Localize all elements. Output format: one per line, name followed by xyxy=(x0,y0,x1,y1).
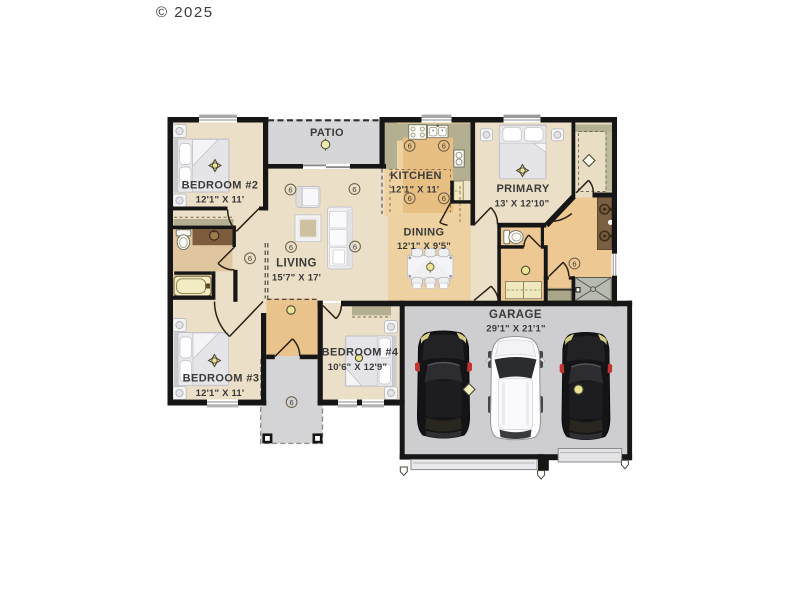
svg-text:10'6" X 12'9": 10'6" X 12'9" xyxy=(328,362,387,373)
svg-text:15'7" X 17': 15'7" X 17' xyxy=(272,273,321,284)
svg-text:BEDROOM #4: BEDROOM #4 xyxy=(322,347,399,359)
svg-text:BEDROOM #3: BEDROOM #3 xyxy=(183,373,260,385)
svg-text:KITCHEN: KITCHEN xyxy=(390,170,442,182)
svg-text:12'1" X 9'5": 12'1" X 9'5" xyxy=(397,241,451,252)
svg-text:12'1" X 11': 12'1" X 11' xyxy=(391,185,440,196)
svg-text:12'1" X 11': 12'1" X 11' xyxy=(196,388,245,399)
svg-text:PATIO: PATIO xyxy=(310,127,344,139)
svg-text:29'1" X 21'1": 29'1" X 21'1" xyxy=(486,324,545,335)
svg-text:6: 6 xyxy=(248,254,252,263)
svg-text:6: 6 xyxy=(442,194,446,203)
svg-text:© 2025: © 2025 xyxy=(156,4,214,21)
svg-text:6: 6 xyxy=(408,142,412,151)
svg-text:6: 6 xyxy=(442,142,446,151)
svg-text:PRIMARY: PRIMARY xyxy=(496,183,549,195)
svg-text:DINING: DINING xyxy=(404,227,445,239)
svg-text:LIVING: LIVING xyxy=(276,258,317,270)
svg-text:GARAGE: GARAGE xyxy=(489,309,542,321)
svg-text:6: 6 xyxy=(289,243,293,252)
svg-text:BEDROOM #2: BEDROOM #2 xyxy=(182,180,259,192)
svg-text:6: 6 xyxy=(288,185,292,194)
svg-text:6: 6 xyxy=(290,398,294,407)
svg-text:6: 6 xyxy=(352,185,356,194)
svg-text:6: 6 xyxy=(353,242,357,251)
svg-text:13' X 12'10": 13' X 12'10" xyxy=(495,199,550,210)
svg-text:12'1" X 11': 12'1" X 11' xyxy=(196,195,245,206)
svg-text:6: 6 xyxy=(572,259,576,268)
